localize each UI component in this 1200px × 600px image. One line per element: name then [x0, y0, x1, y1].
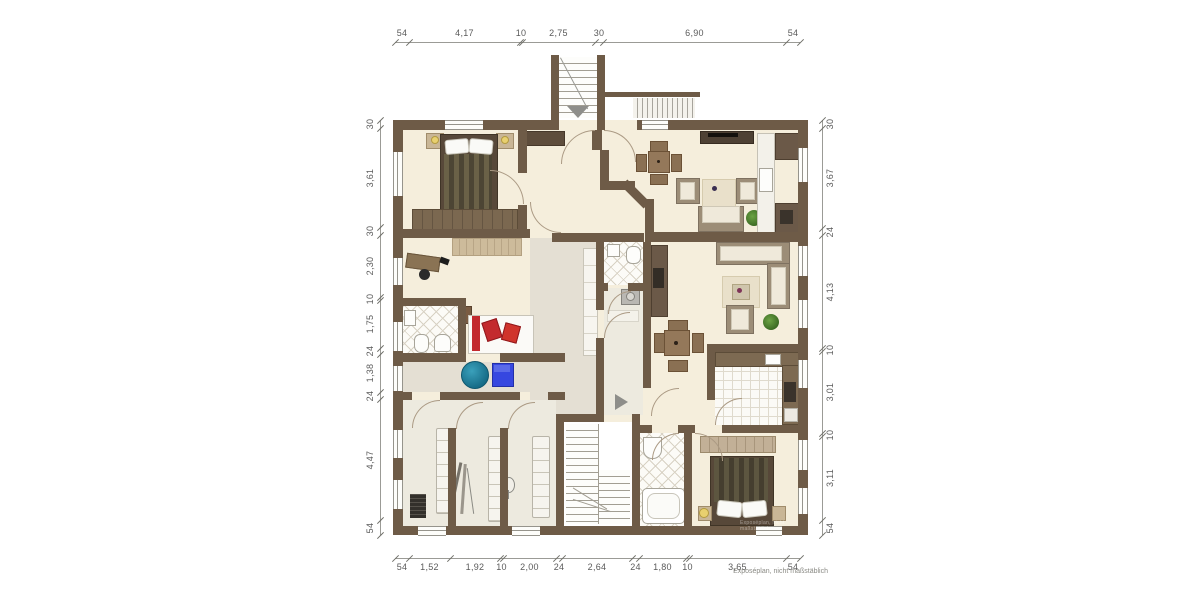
- shelf-unit: [532, 436, 550, 518]
- dimension-label: 6,90: [685, 28, 704, 38]
- wall-wc-east: [643, 242, 651, 288]
- wall-bath-north: [678, 425, 695, 433]
- toilet: [414, 334, 429, 353]
- chair: [650, 174, 668, 185]
- wall-storage-divider: [448, 428, 456, 526]
- dimension-label: 24: [825, 226, 835, 237]
- desk-chair: [419, 269, 430, 280]
- lamp-icon: [699, 508, 709, 518]
- dimension-label: 54: [788, 28, 799, 38]
- stair-divider: [598, 424, 599, 524]
- pouf-round: [461, 361, 489, 389]
- coffee-deco-icon: [737, 288, 742, 293]
- stairwell-flight-right: [598, 470, 630, 524]
- pillow: [741, 500, 768, 519]
- bath-sink: [404, 310, 416, 326]
- wall-unit3-north: [651, 232, 808, 242]
- dimension-label: 3,11: [825, 469, 835, 487]
- scale-note: Exposéplan, nicht maßstäblich: [700, 568, 828, 575]
- stairwell-flight-left: [566, 424, 598, 524]
- wall-lobby-east: [643, 288, 651, 388]
- dimension-label: 2,30: [365, 257, 375, 276]
- chair: [692, 333, 704, 353]
- entry-wardrobe: [525, 131, 565, 146]
- corner-sofa-cushions: [771, 267, 786, 305]
- dimension-label: 54: [825, 522, 835, 533]
- wall-shaft-right: [597, 55, 605, 120]
- dimension-label: 3,01: [825, 383, 835, 402]
- window: [798, 300, 808, 328]
- dimension-label: 24: [365, 390, 375, 401]
- dimension-label: 30: [365, 226, 375, 237]
- dimension-label: 1,38: [365, 364, 375, 383]
- wall-hall-east: [596, 288, 604, 310]
- coffee-rug: [702, 179, 736, 208]
- wall-left-horizontal: [393, 229, 530, 238]
- dimension-label: 10: [496, 562, 507, 572]
- chair: [636, 154, 647, 172]
- dimension-label: 2,64: [588, 562, 607, 572]
- racket-handle: [508, 490, 509, 499]
- coffee-deco-icon: [712, 186, 717, 191]
- wall-hall-east: [596, 338, 604, 414]
- chair: [668, 360, 688, 372]
- dimension-label: 1,92: [466, 562, 485, 572]
- wall-shaft-left: [551, 55, 559, 120]
- lamp-icon: [431, 136, 439, 144]
- outdoor-stairs: [633, 98, 695, 118]
- dimension-label: 10: [682, 562, 693, 572]
- wall-bath-left-north: [402, 298, 466, 306]
- wall-mid-horizontal: [552, 233, 644, 242]
- dimension-label: 30: [365, 119, 375, 130]
- wall-stairwell-east: [632, 414, 640, 526]
- dimension-label: 54: [397, 562, 408, 572]
- dimension-label: 30: [825, 119, 835, 130]
- dimension-label: 54: [397, 28, 408, 38]
- pillow: [444, 138, 469, 155]
- wall-wc-west: [596, 242, 604, 288]
- pillow: [468, 138, 493, 155]
- window: [798, 440, 808, 470]
- bed-cover: [444, 154, 492, 211]
- bathtub-inner: [647, 493, 680, 519]
- entrance-opening: [559, 120, 597, 130]
- window: [393, 322, 403, 351]
- dimension-label: 4,47: [365, 450, 375, 469]
- red-runner: [472, 316, 480, 351]
- dishwasher: [784, 408, 798, 422]
- kitchen-sink: [765, 354, 781, 365]
- window: [798, 360, 808, 388]
- window: [642, 120, 668, 130]
- wall-kitchen-west: [707, 344, 715, 400]
- crate: [410, 494, 426, 518]
- armchair-cushion: [680, 182, 695, 200]
- corner-sofa-cushions: [720, 246, 782, 261]
- window: [445, 120, 483, 130]
- window: [798, 488, 808, 514]
- wall-bedroom-divider: [518, 129, 527, 173]
- window: [393, 366, 403, 391]
- oven: [780, 210, 793, 224]
- stove: [784, 382, 796, 402]
- dimension-label: 1,52: [420, 562, 439, 572]
- wall-balcony-rail: [605, 92, 700, 97]
- built-in-oven: [653, 268, 664, 288]
- wall-watermark: Exposéplan, nicht maßstäblich: [740, 520, 810, 532]
- entrance-arrow-icon: [567, 106, 589, 118]
- dimension-label: 10: [825, 344, 835, 355]
- wall-kitchen-north: [707, 344, 799, 352]
- dimension-label: 3,67: [825, 169, 835, 188]
- dimension-label: 2,75: [549, 28, 568, 38]
- dimension-label: 10: [825, 429, 835, 440]
- wall-storage-north: [402, 392, 412, 400]
- pillow: [716, 500, 743, 519]
- wall-nook-south: [500, 353, 565, 362]
- dimension-label: 54: [365, 522, 375, 533]
- nightstand: [772, 506, 786, 521]
- wall-bath-east: [684, 433, 692, 526]
- table-deco-icon: [674, 341, 678, 345]
- wall-bath-left-east: [458, 306, 466, 360]
- chair: [671, 154, 682, 172]
- unit-entrance-arrow-icon: [615, 394, 628, 410]
- bed-cover: [714, 458, 768, 502]
- dimension-label: 24: [630, 562, 641, 572]
- wall-bath-north: [640, 425, 652, 433]
- wall-storage-divider: [500, 428, 508, 526]
- fridge: [775, 133, 799, 160]
- dimension-label: 1,75: [365, 315, 375, 334]
- wall-storage-north: [548, 392, 565, 400]
- armchair-cushion: [731, 309, 749, 330]
- window: [798, 246, 808, 276]
- dimension-label: 30: [594, 28, 605, 38]
- dimension-label: 4,13: [825, 282, 835, 301]
- window: [393, 480, 403, 509]
- window: [393, 258, 403, 285]
- wall-nook-south: [402, 353, 466, 362]
- wall-bedroom-north: [722, 425, 798, 433]
- window: [798, 148, 808, 182]
- dimension-label: 4,17: [455, 28, 474, 38]
- tv: [708, 133, 738, 137]
- wall-storage-north: [440, 392, 520, 400]
- lamp-icon: [501, 136, 509, 144]
- armchair-cushion: [740, 182, 755, 200]
- wall-stairwell-west: [556, 414, 564, 526]
- floorplan-canvas: 544,17102,75306,9054 541,521,92102,00242…: [0, 0, 1200, 600]
- dimension-label: 24: [365, 346, 375, 357]
- table-deco-icon: [657, 160, 660, 163]
- bidet: [434, 334, 451, 352]
- dimension-label: 2,00: [520, 562, 539, 572]
- wc-sink: [607, 244, 620, 257]
- window: [418, 526, 446, 536]
- plant-icon: [763, 314, 779, 330]
- rug: [452, 238, 522, 256]
- dimension-label: 10: [365, 293, 375, 304]
- window: [512, 526, 540, 536]
- dimension-label: 1,80: [653, 562, 672, 572]
- window: [393, 152, 403, 196]
- dimension-label: 3,61: [365, 168, 375, 187]
- wc-toilet: [626, 246, 641, 264]
- blue-chair-back: [494, 365, 510, 372]
- unit2-door-opening: [605, 120, 637, 130]
- kitchen-sink: [759, 168, 773, 192]
- dimension-label: 24: [554, 562, 565, 572]
- sideboard: [412, 209, 518, 231]
- sofa-cushions: [702, 206, 740, 223]
- window: [393, 430, 403, 458]
- dimension-label: 10: [516, 28, 527, 38]
